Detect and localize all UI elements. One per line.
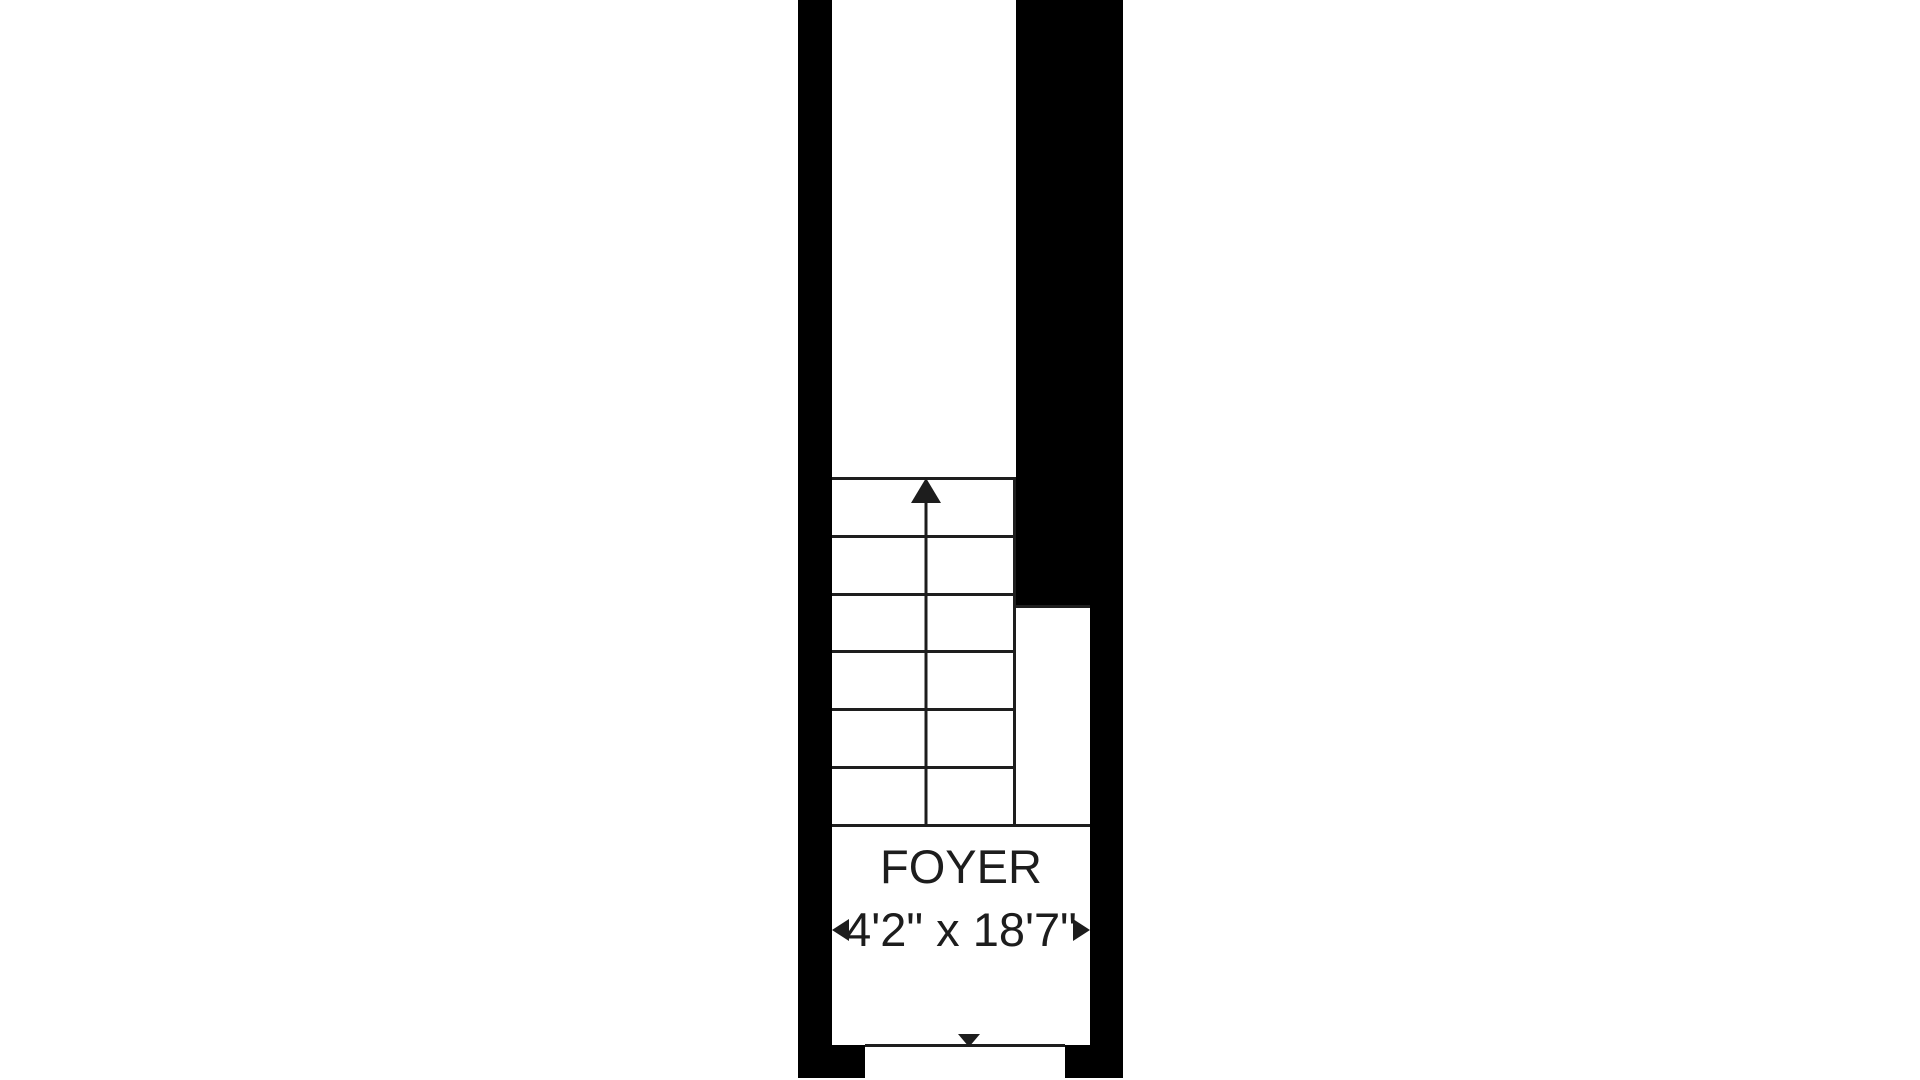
stair-tread bbox=[832, 650, 1013, 708]
stair-tread bbox=[832, 593, 1013, 651]
room-dimension-line: 4'2" x 18'7" bbox=[832, 906, 1090, 954]
room-dimensions: 4'2" x 18'7" bbox=[832, 906, 1090, 954]
entry-direction-icon bbox=[958, 1034, 980, 1047]
stair-tread bbox=[832, 766, 1013, 824]
wall-right-upper bbox=[1016, 0, 1123, 605]
staircase bbox=[832, 477, 1016, 827]
entry-jamb-left bbox=[798, 1045, 865, 1078]
stair-tread bbox=[832, 480, 1013, 535]
floor-plan: FOYER 4'2" x 18'7" bbox=[0, 0, 1920, 1080]
stair-tread bbox=[832, 535, 1013, 593]
dimension-arrow-right-icon bbox=[1073, 919, 1090, 941]
wall-right-lower bbox=[1090, 605, 1123, 1078]
stair-tread bbox=[832, 708, 1013, 766]
wall-left bbox=[798, 0, 832, 1078]
room-label: FOYER bbox=[832, 841, 1090, 893]
entry-jamb-right bbox=[1065, 1045, 1123, 1078]
closet-niche bbox=[1016, 605, 1090, 827]
